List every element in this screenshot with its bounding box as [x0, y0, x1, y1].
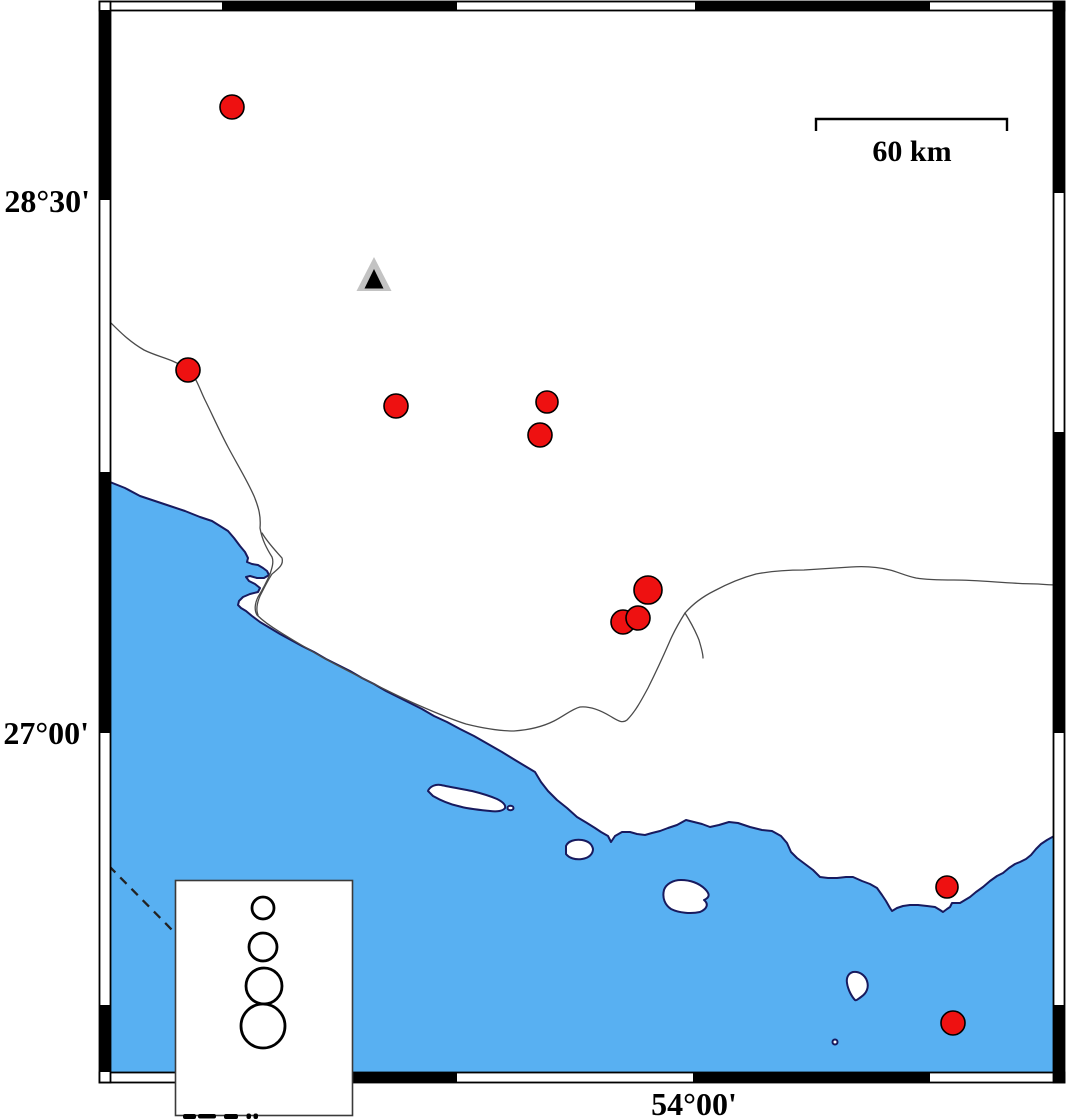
road-line-east	[685, 567, 1064, 613]
island-speck	[833, 1040, 838, 1045]
legend-magnitude-circle	[241, 1004, 285, 1048]
lon-label-bottom: 54°00'	[651, 1086, 737, 1120]
island-small	[566, 840, 593, 860]
map-canvas: 60 km 28°30' 27°00' 54°00'	[0, 0, 1066, 1120]
epicenter-marker	[528, 423, 552, 447]
epicenter-marker	[220, 95, 244, 119]
road-line-hook	[685, 613, 703, 658]
scale-bar-bracket	[816, 119, 1007, 131]
epicenter-marker	[176, 358, 200, 382]
magnitude-legend	[176, 881, 353, 1120]
epicenter-marker	[634, 576, 662, 604]
legend-magnitude-circle	[249, 933, 277, 961]
map-figure: 60 km 28°30' 27°00' 54°00'	[0, 0, 1066, 1120]
epicenter-marker	[941, 1011, 965, 1035]
islet-tiny	[508, 806, 514, 810]
lat-label-lower: 27°00'	[3, 715, 89, 751]
epicenter-marker	[936, 876, 958, 898]
scale-bar-label: 60 km	[872, 135, 951, 168]
epicenter-marker	[626, 606, 650, 630]
legend-magnitude-circle	[252, 897, 274, 919]
legend-magnitude-circle	[246, 968, 282, 1004]
station-triangle	[357, 257, 392, 291]
epicenter-marker	[384, 394, 408, 418]
epicenter-marker	[536, 391, 558, 413]
lat-label-upper: 28°30'	[4, 183, 90, 219]
